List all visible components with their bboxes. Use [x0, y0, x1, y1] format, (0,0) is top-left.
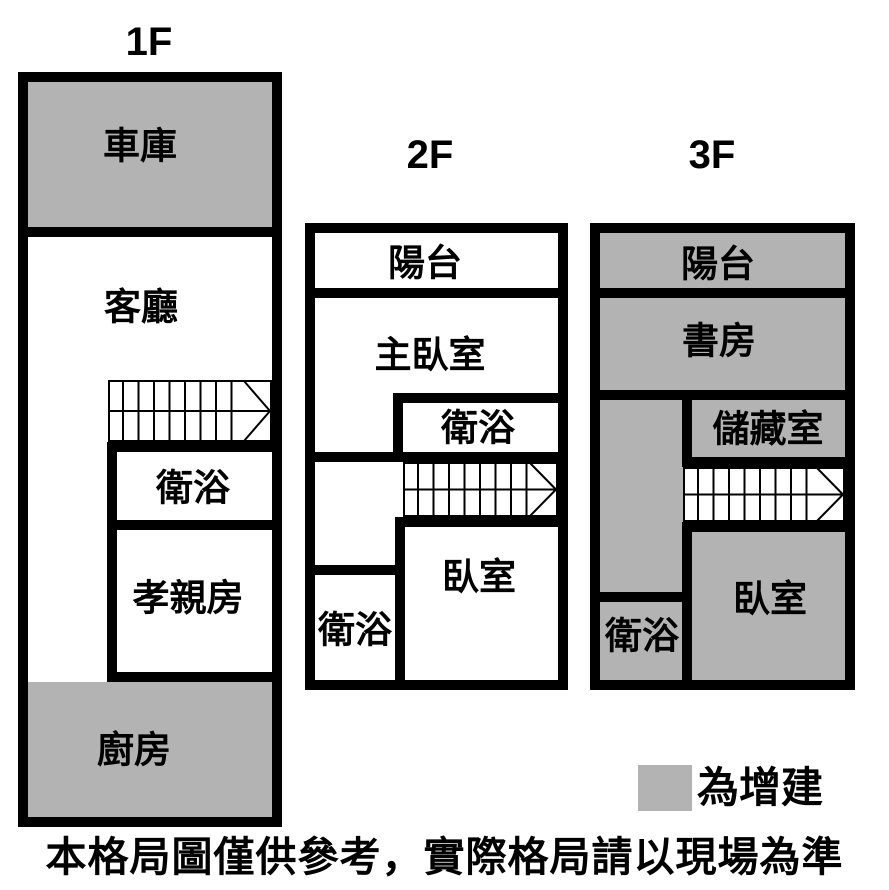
- room-label-parents-room: 孝親房: [133, 580, 244, 617]
- wall-bedroom-left-2f: [395, 517, 405, 680]
- wall-bath-parents-left: [107, 442, 117, 682]
- room-label-storage: 儲藏室: [713, 411, 824, 448]
- room-label-balcony-3f: 陽台: [681, 246, 755, 283]
- wall-corridor-bath-divider-3f: [600, 592, 692, 602]
- floor-title-1f: 1F: [126, 22, 173, 62]
- room-label-bedroom-3f: 臥室: [733, 581, 807, 618]
- wall-garage-bottom: [28, 227, 272, 237]
- room-label-living-room: 客廳: [104, 289, 178, 326]
- room-label-bathroom-lower-2f: 衛浴: [318, 612, 392, 649]
- room-label-balcony-2f: 陽台: [388, 245, 462, 282]
- room-label-kitchen: 廚房: [97, 732, 171, 769]
- stairs-1f-icon: [108, 380, 272, 442]
- wall-parents-bottom: [107, 672, 272, 682]
- legend-addition-swatch: [638, 765, 692, 811]
- room-label-bathroom-1f: 衛浴: [156, 470, 230, 507]
- wall-mid-2f: [315, 452, 558, 462]
- room-label-garage: 車庫: [103, 128, 177, 165]
- wall-under-stairs-1f: [107, 442, 272, 452]
- wall-balcony-bottom-2f: [315, 288, 558, 298]
- stairs-2f-icon: [403, 462, 558, 517]
- wall-bath-top-2f: [393, 393, 558, 403]
- disclaimer-text: 本格局圖僅供參考，實際格局請以現場為準: [0, 837, 889, 878]
- wall-under-stairs-3f: [682, 522, 845, 532]
- wall-study-bottom: [600, 390, 845, 400]
- room-label-bathroom-3f: 衛浴: [605, 618, 679, 655]
- floor-plan-1f: 車庫 客廳 衛浴 孝親房 廚房: [18, 72, 282, 827]
- room-label-master-bedroom: 主臥室: [375, 337, 486, 374]
- floor-title-3f: 3F: [689, 135, 736, 175]
- wall-storage-bottom: [682, 457, 845, 467]
- wall-bath-bottom-1f: [107, 520, 272, 530]
- wall-balcony-bottom-3f: [600, 288, 845, 298]
- floor-plan-2f: 陽台 主臥室 衛浴 臥室 衛浴: [305, 223, 568, 690]
- wall-corridor-bath-divider-2f: [315, 565, 405, 575]
- wall-under-stairs-2f: [395, 517, 558, 527]
- room-label-study: 書房: [682, 323, 756, 360]
- room-label-bathroom-upper-2f: 衛浴: [441, 410, 515, 447]
- legend-addition-label: 為增建: [697, 767, 823, 809]
- stairs-3f-icon: [683, 467, 845, 522]
- floor-title-2f: 2F: [407, 135, 454, 175]
- room-label-bedroom-2f: 臥室: [442, 559, 516, 596]
- floor-plan-3f: 陽台 書房 儲藏室 臥室 衛浴: [590, 223, 855, 690]
